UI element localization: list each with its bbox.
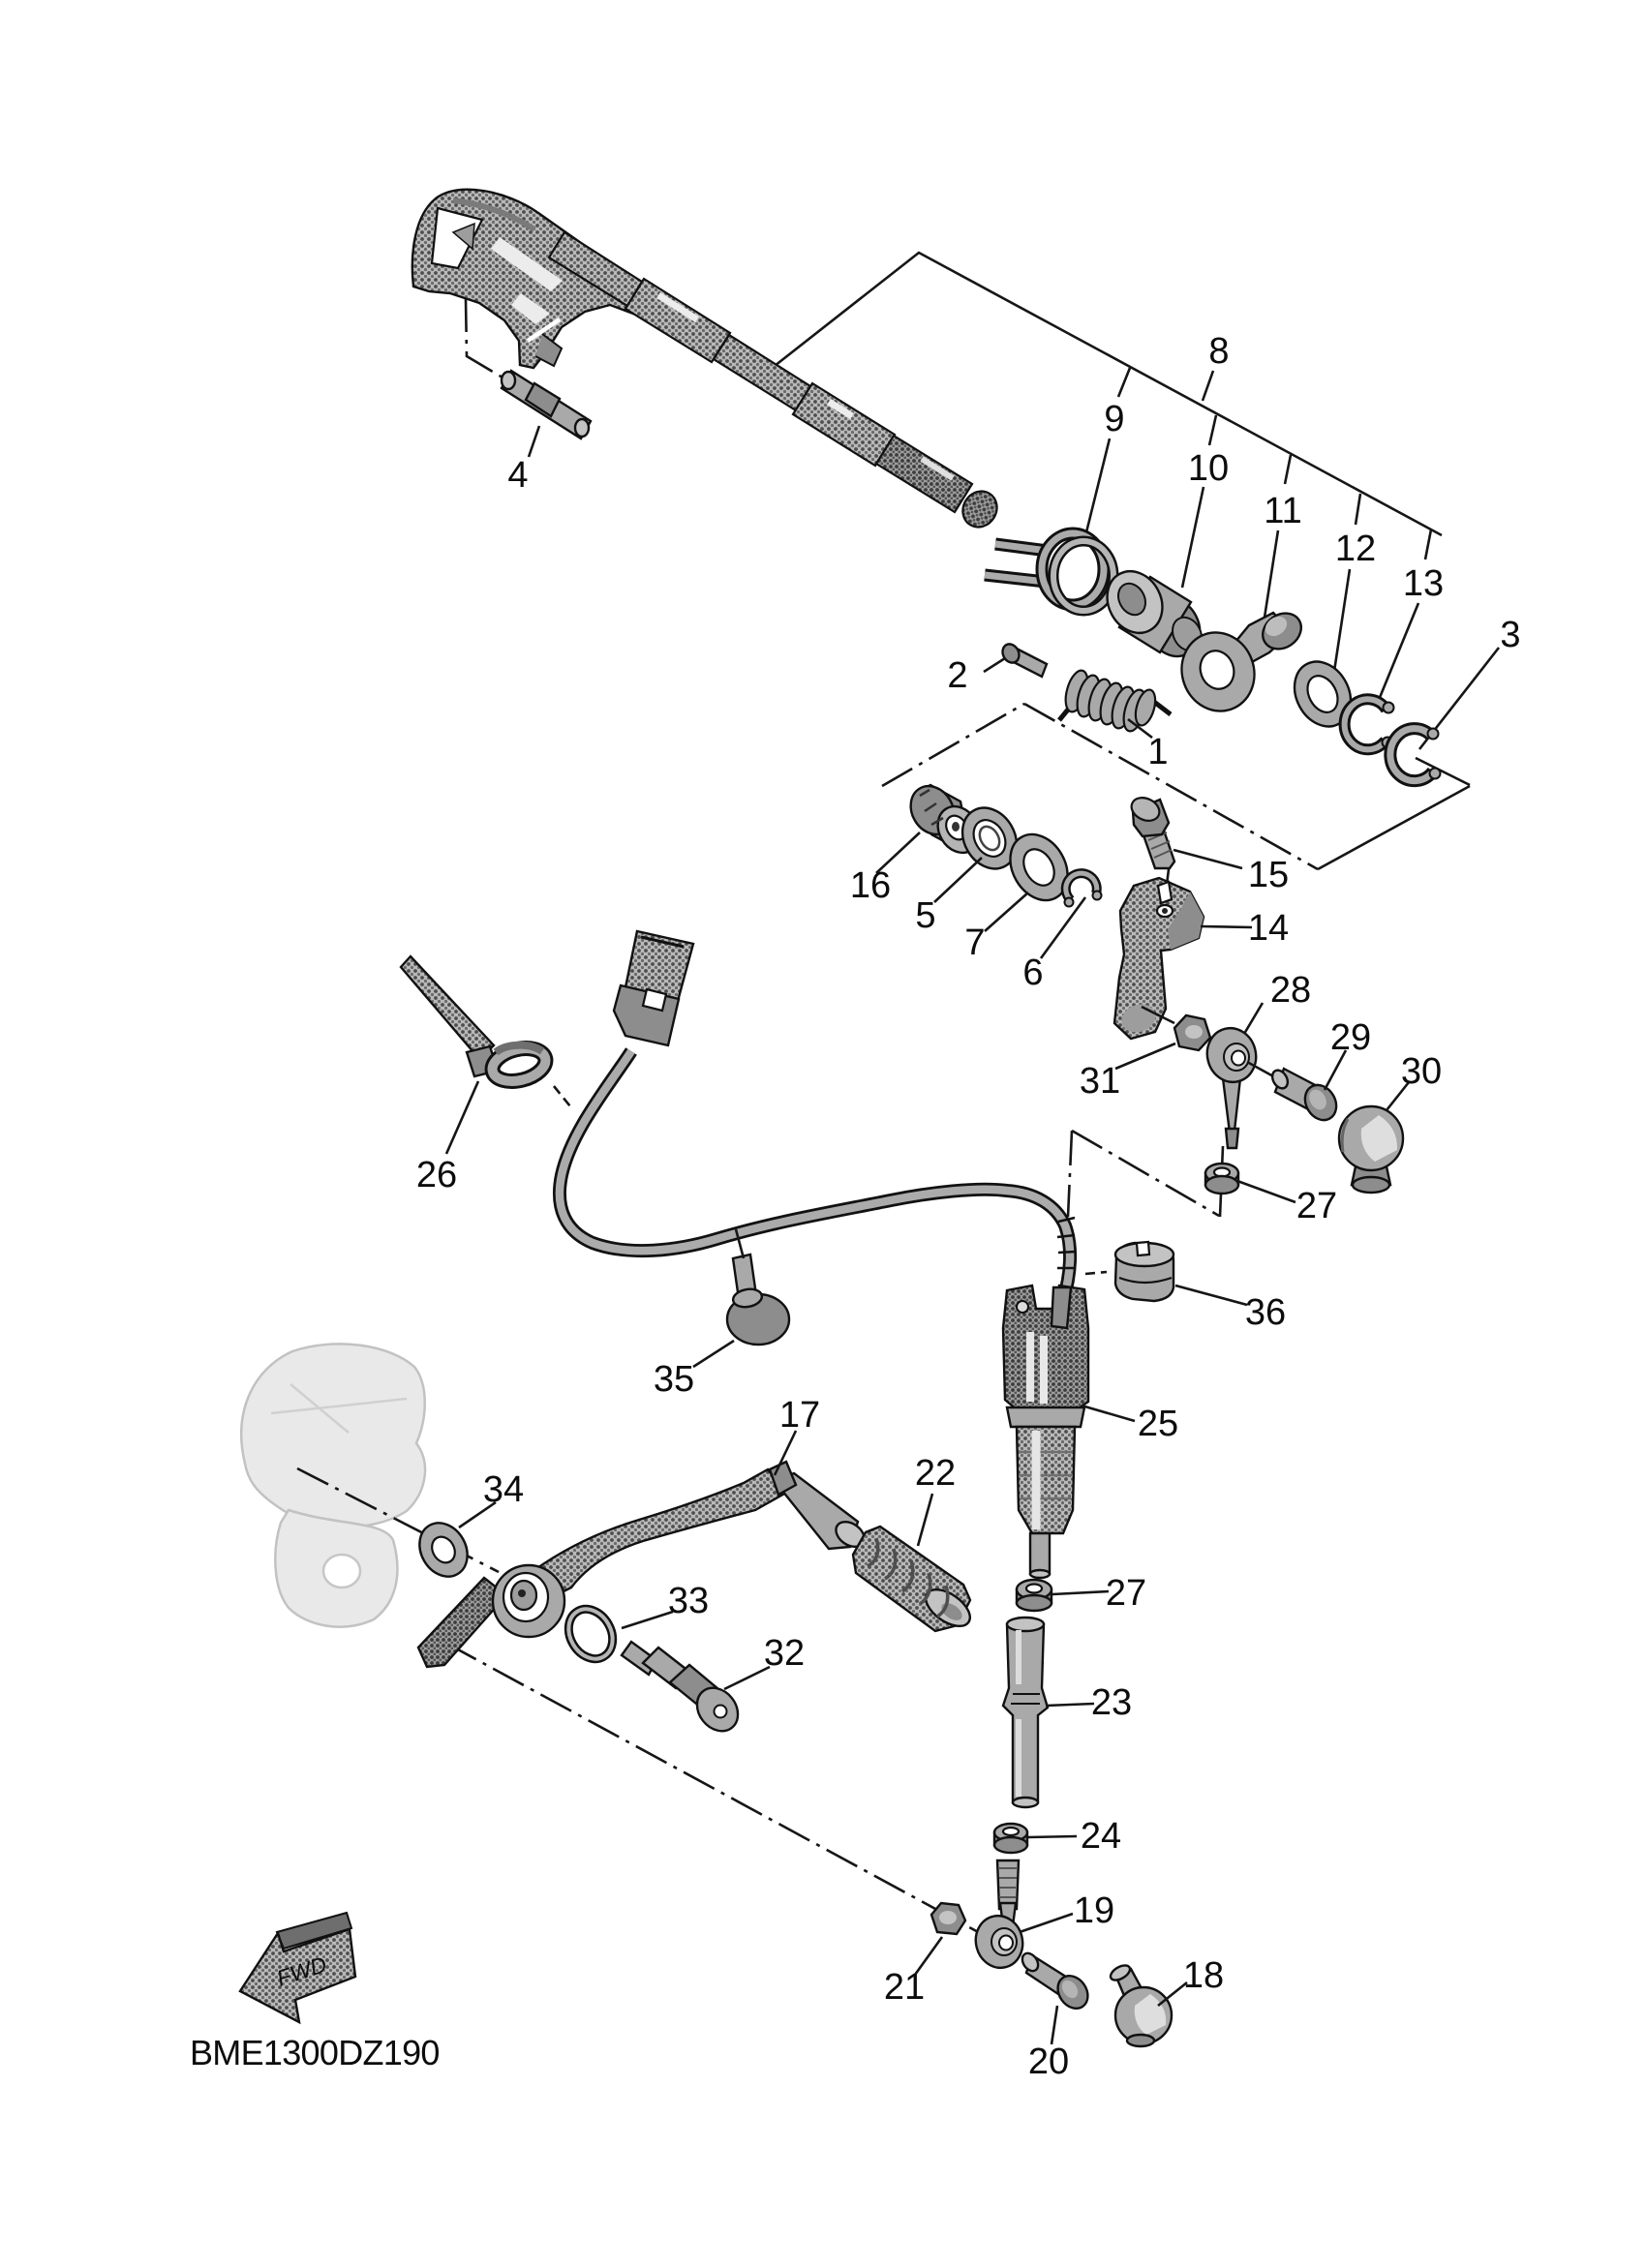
svg-text:12: 12	[1335, 529, 1376, 569]
svg-text:6: 6	[1022, 953, 1043, 993]
svg-text:1: 1	[1147, 732, 1168, 772]
svg-text:27: 27	[1296, 1186, 1337, 1226]
svg-text:21: 21	[884, 1967, 925, 2008]
svg-text:9: 9	[1104, 399, 1124, 439]
svg-text:10: 10	[1188, 448, 1229, 489]
svg-text:32: 32	[764, 1633, 805, 1674]
svg-text:36: 36	[1245, 1292, 1286, 1333]
svg-text:BME1300DZ190: BME1300DZ190	[190, 2033, 440, 2072]
svg-text:29: 29	[1330, 1017, 1371, 1058]
svg-text:31: 31	[1080, 1061, 1120, 1102]
svg-text:19: 19	[1074, 1890, 1114, 1931]
svg-text:14: 14	[1248, 908, 1289, 949]
svg-text:23: 23	[1091, 1682, 1132, 1723]
svg-text:20: 20	[1028, 2041, 1069, 2082]
svg-text:8: 8	[1208, 331, 1229, 372]
svg-text:35: 35	[654, 1359, 694, 1400]
svg-text:33: 33	[668, 1581, 709, 1621]
svg-text:26: 26	[416, 1155, 457, 1195]
svg-text:28: 28	[1270, 970, 1311, 1011]
svg-text:24: 24	[1081, 1816, 1121, 1857]
svg-text:34: 34	[483, 1469, 524, 1510]
svg-text:13: 13	[1403, 563, 1444, 604]
svg-text:22: 22	[915, 1453, 956, 1494]
svg-text:16: 16	[850, 865, 891, 906]
svg-text:4: 4	[507, 455, 528, 496]
svg-text:3: 3	[1500, 615, 1520, 655]
svg-text:27: 27	[1106, 1573, 1146, 1614]
svg-text:18: 18	[1183, 1955, 1224, 1996]
svg-text:17: 17	[779, 1395, 820, 1436]
svg-text:5: 5	[915, 895, 935, 936]
svg-text:2: 2	[947, 655, 967, 696]
svg-text:15: 15	[1248, 855, 1289, 895]
svg-text:7: 7	[964, 922, 985, 963]
svg-text:30: 30	[1401, 1051, 1442, 1092]
svg-text:11: 11	[1264, 491, 1301, 531]
svg-text:25: 25	[1138, 1404, 1178, 1444]
